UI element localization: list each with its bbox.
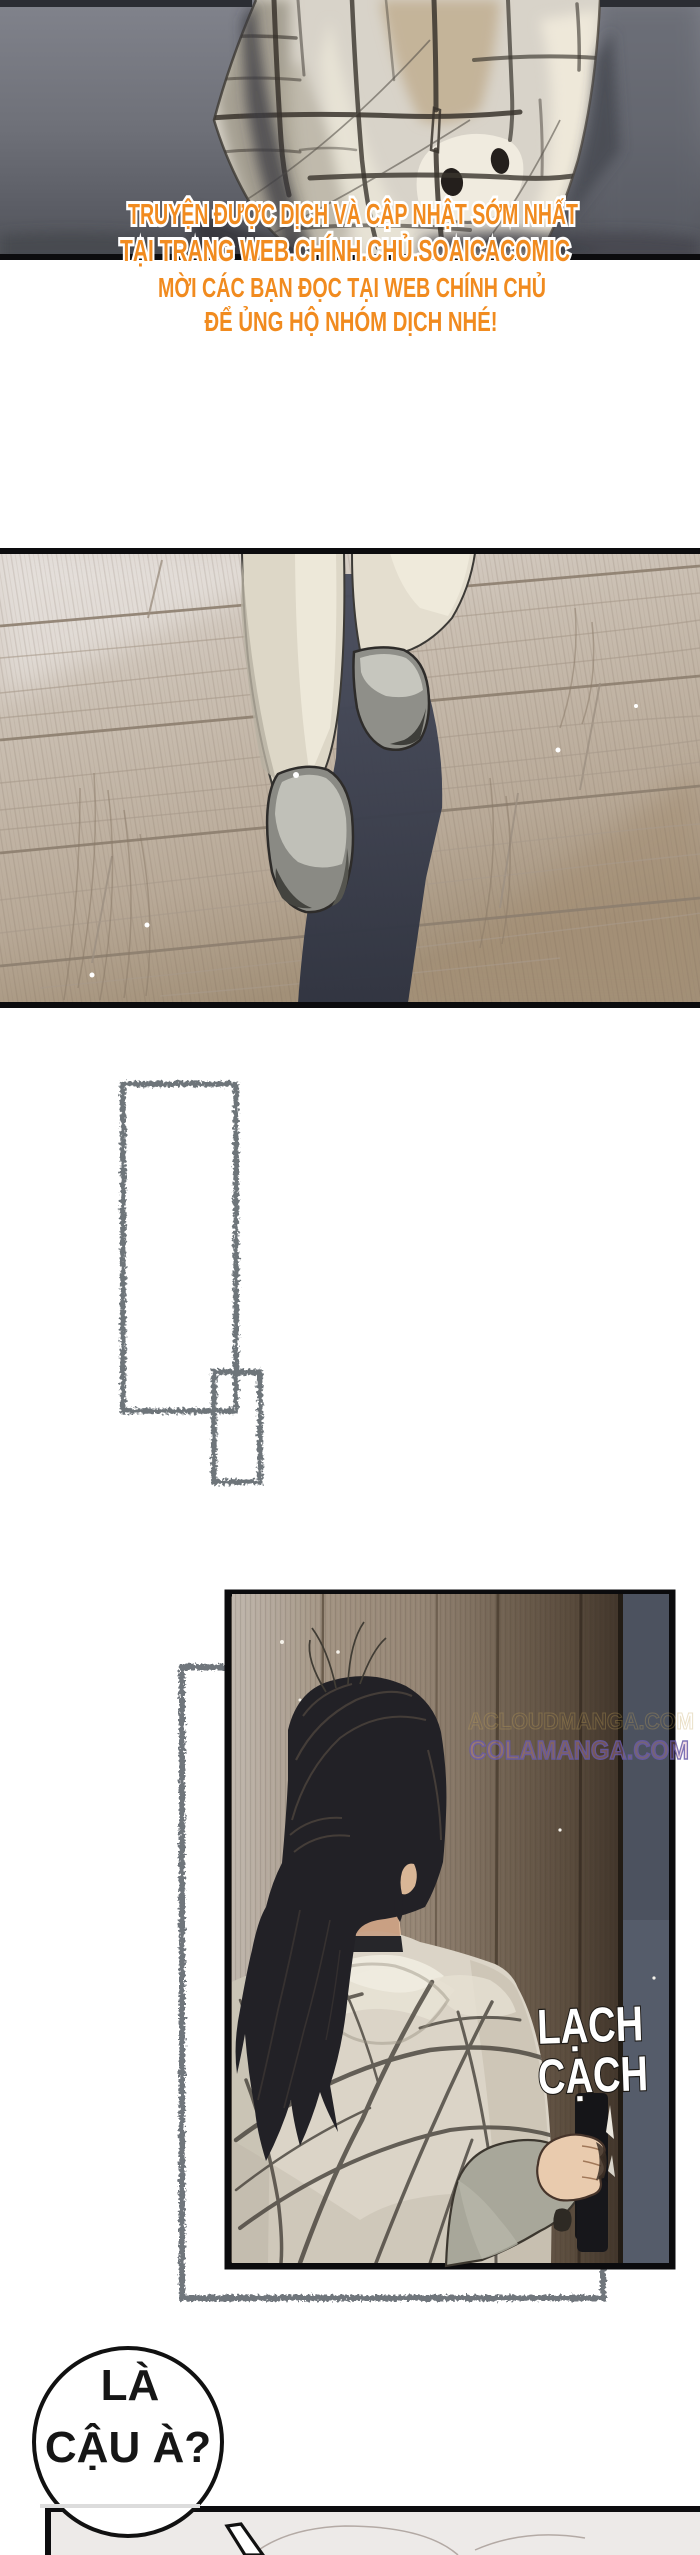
svg-text:TẠI TRANG WEB.CHÍNH.CHỦ.SOAICA: TẠI TRANG WEB.CHÍNH.CHỦ.SOAICACOMIC: [120, 232, 570, 268]
svg-text:MỜI CÁC BẠN ĐỌC TẠI WEB CHÍNH: MỜI CÁC BẠN ĐỌC TẠI WEB CHÍNH CHỦ: [158, 271, 546, 303]
svg-text:LẠCH: LẠCH: [536, 1997, 644, 2055]
svg-text:ACLOUDMANGA.COM: ACLOUDMANGA.COM: [468, 1708, 694, 1734]
svg-text:TRUYỆN ĐƯỢC DỊCH VÀ CẬP NHẬT S: TRUYỆN ĐƯỢC DỊCH VÀ CẬP NHẬT SỚM NHẤT: [128, 197, 578, 231]
svg-text:COLAMANGA.COM: COLAMANGA.COM: [469, 1735, 689, 1765]
svg-text:CẠCH: CẠCH: [537, 2047, 649, 2105]
svg-text:LÀ: LÀ: [101, 2360, 160, 2410]
svg-text:CẬU À?: CẬU À?: [45, 2422, 211, 2472]
svg-text:ĐỂ ỦNG HỘ NHÓM DỊCH NHÉ!: ĐỂ ỦNG HỘ NHÓM DỊCH NHÉ!: [205, 305, 498, 337]
